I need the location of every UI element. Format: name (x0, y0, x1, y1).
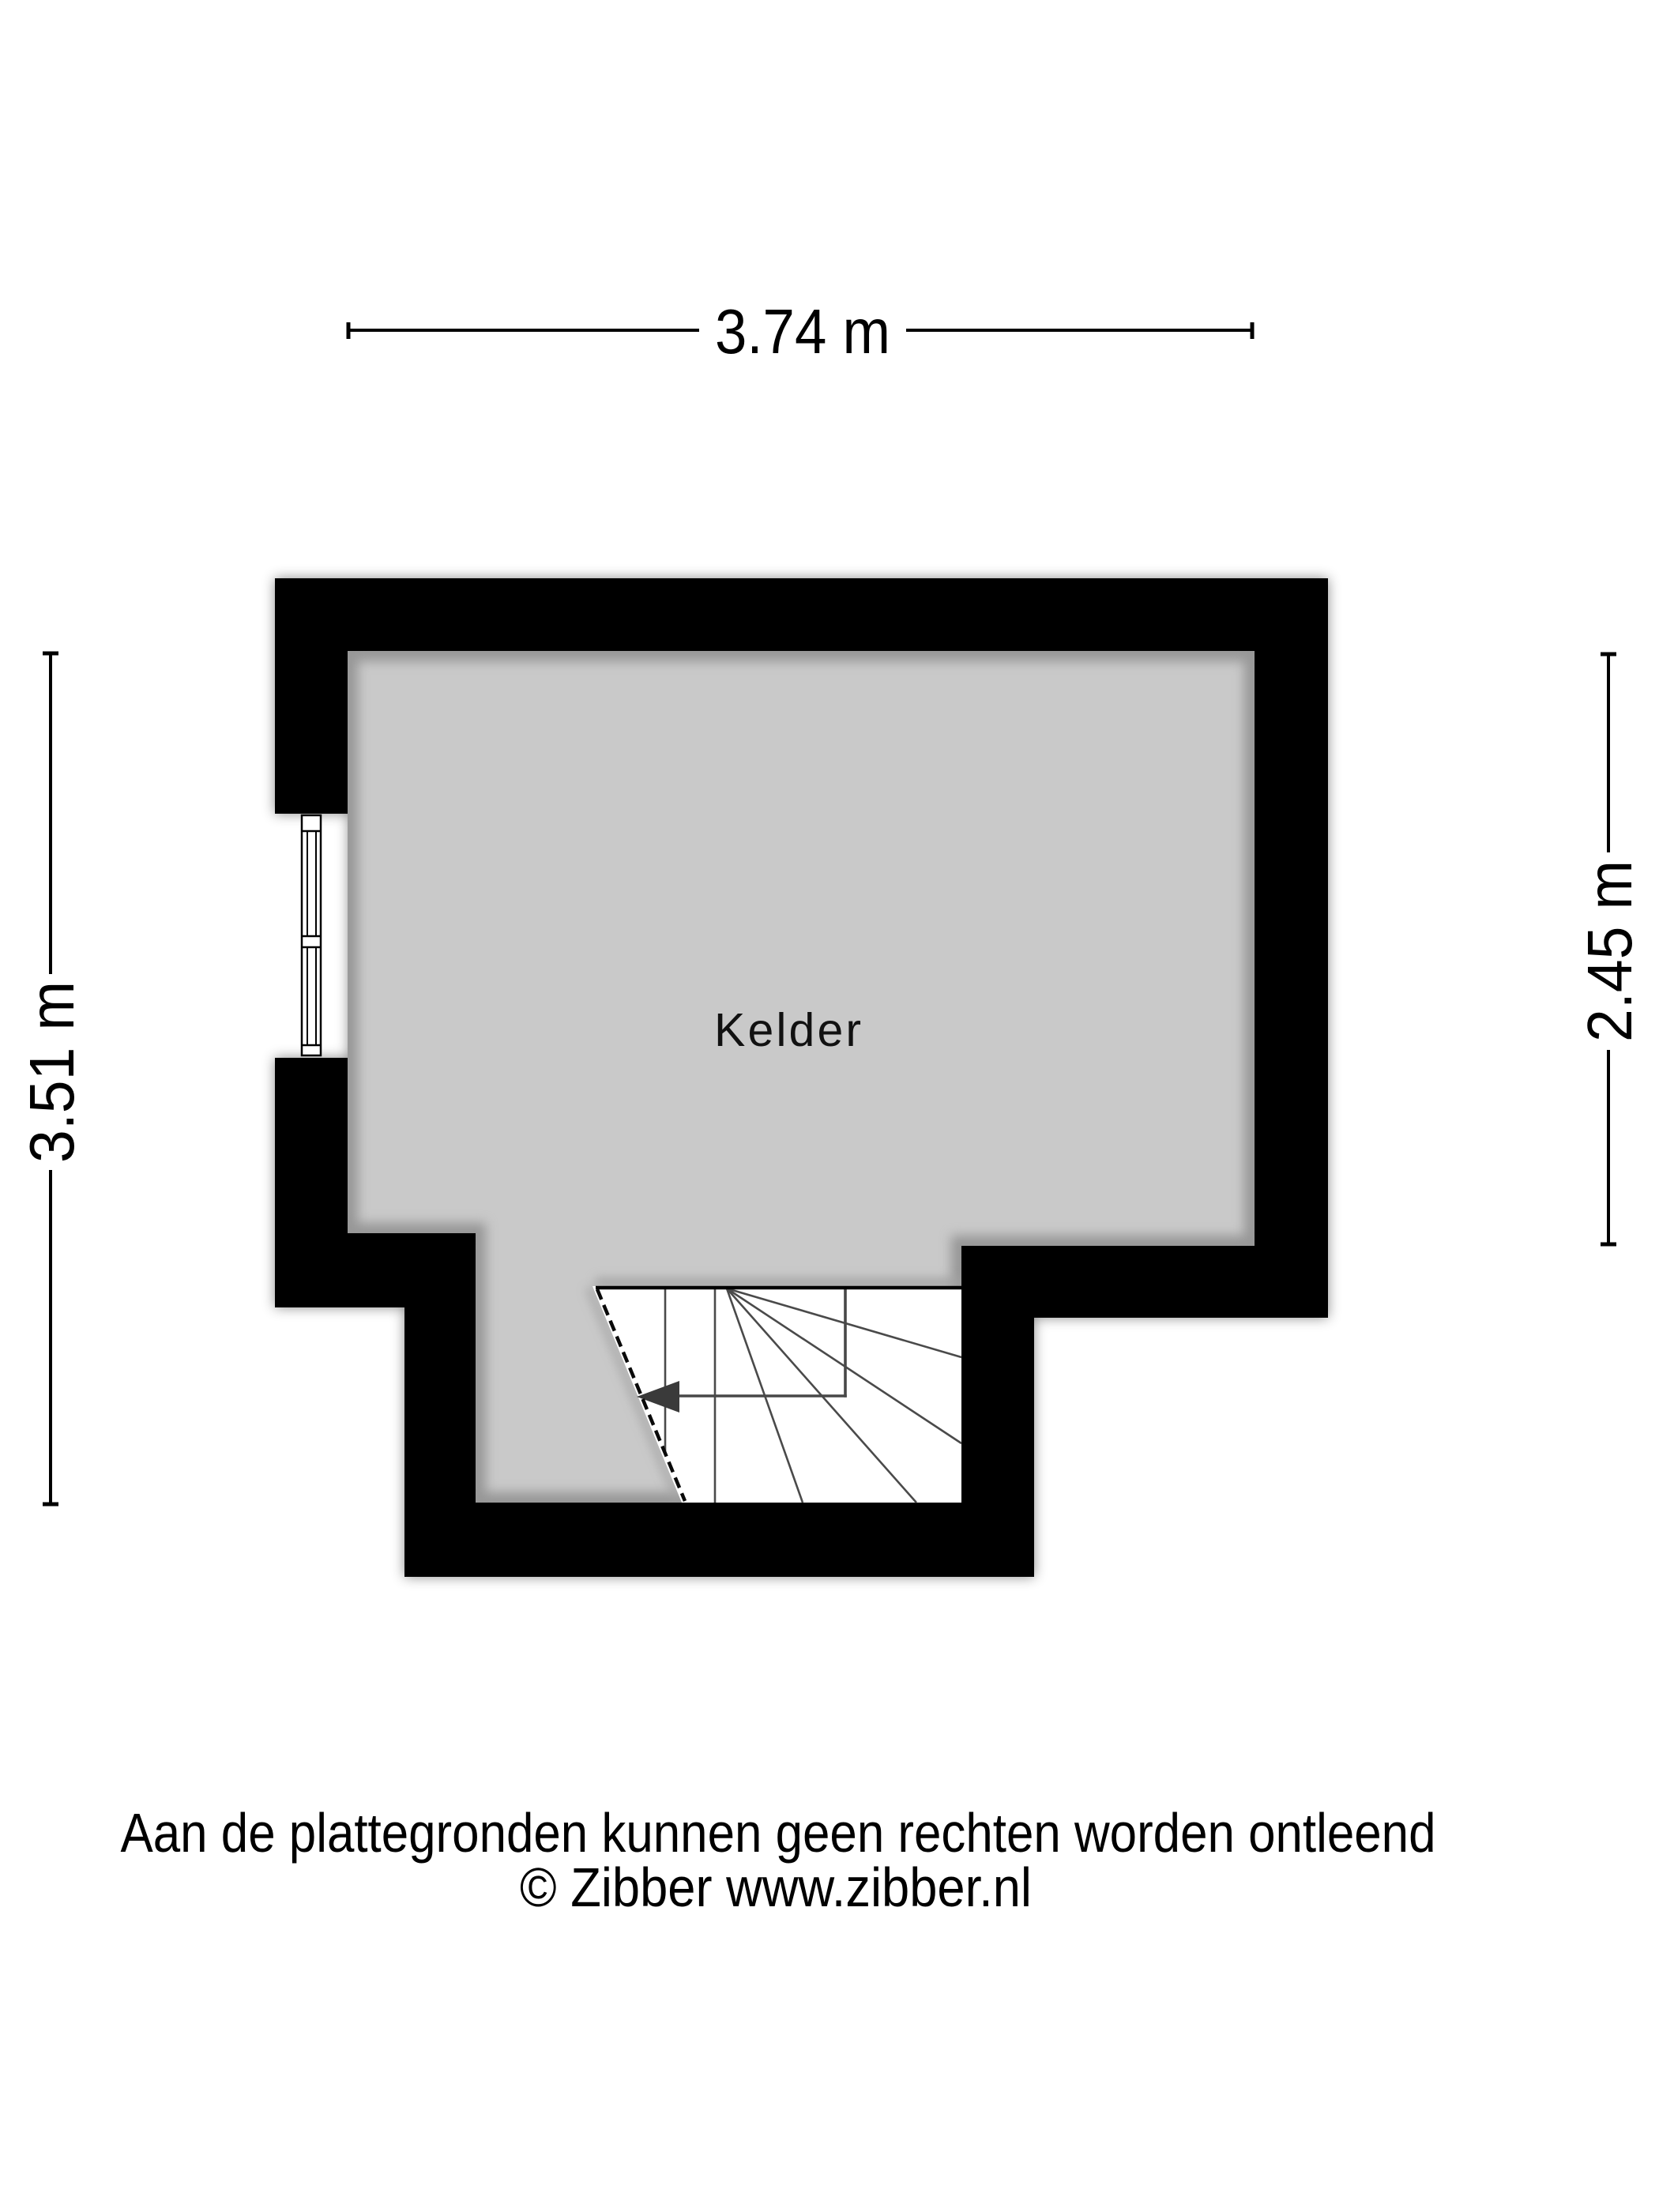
svg-text:Aan de plattegronden kunnen ge: Aan de plattegronden kunnen geen rechten… (121, 1802, 1436, 1864)
svg-text:3.74 m: 3.74 m (715, 296, 890, 367)
svg-text:2.45 m: 2.45 m (1574, 860, 1645, 1042)
svg-text:3.51 m: 3.51 m (17, 981, 87, 1163)
svg-text:© Zibber www.zibber.nl: © Zibber www.zibber.nl (520, 1856, 1032, 1918)
